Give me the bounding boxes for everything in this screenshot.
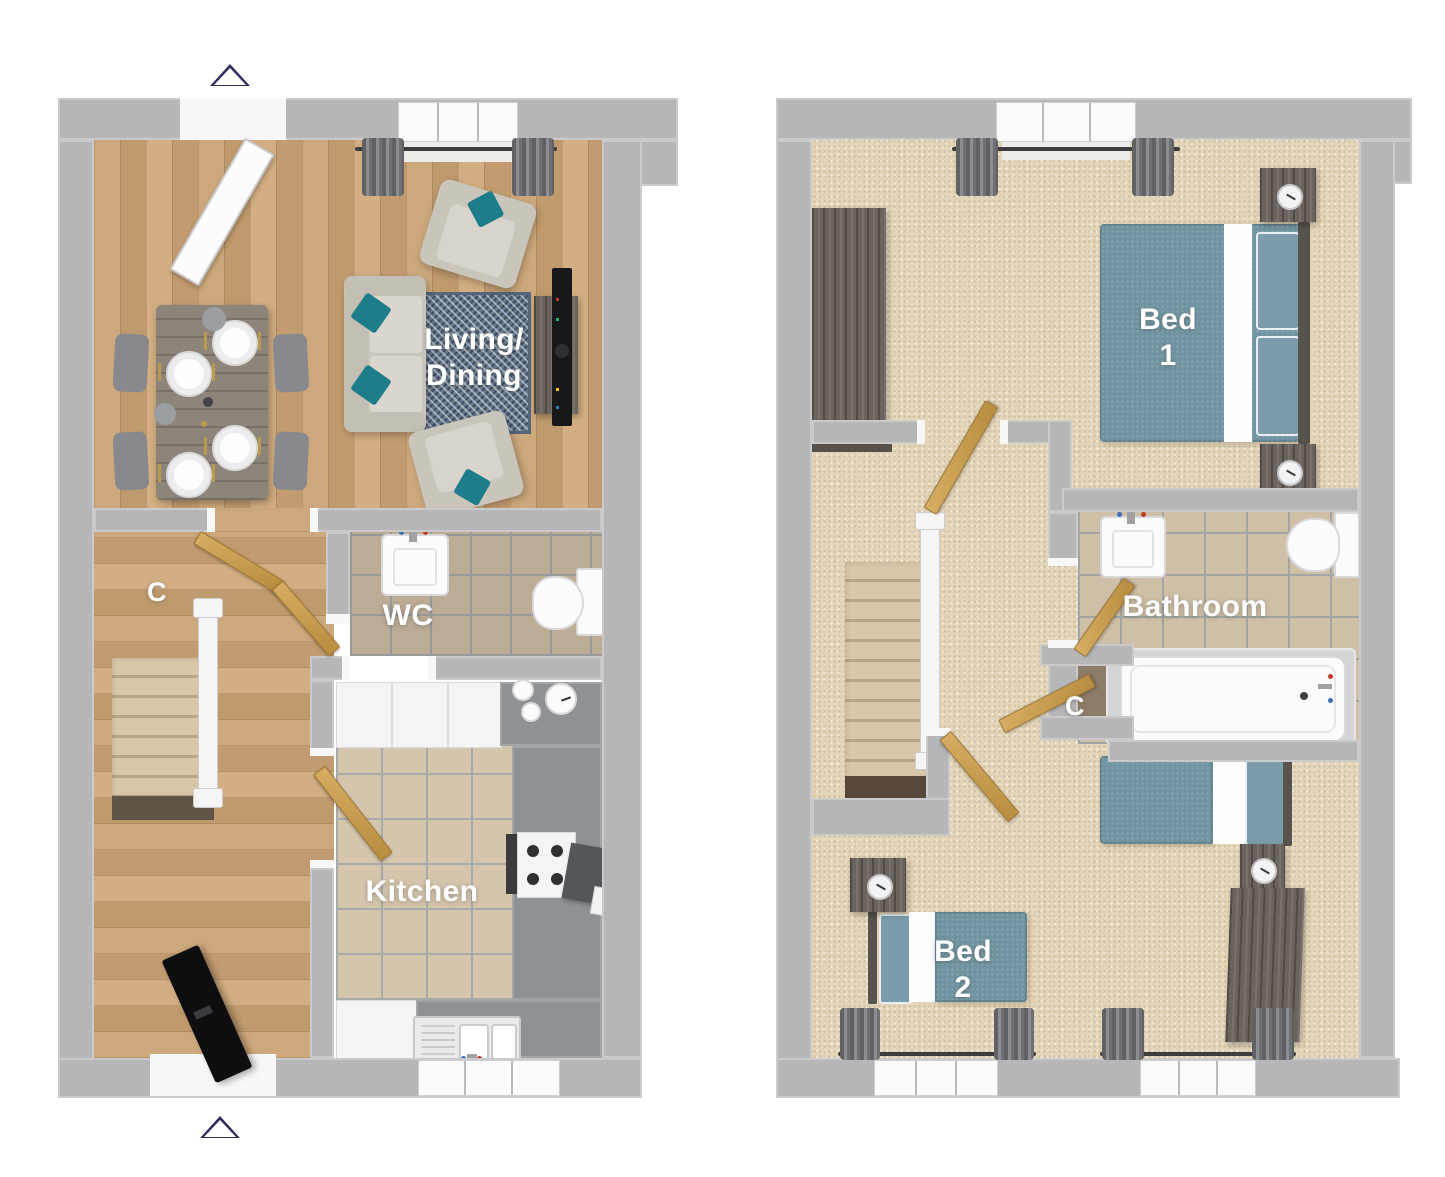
bed1-pillow (1256, 232, 1300, 330)
cutlery (258, 437, 261, 455)
living-dining-label-line2: Dining (426, 359, 522, 392)
lamp (1277, 184, 1303, 210)
entrance-triangle-icon (210, 64, 250, 86)
bed2-runner (1213, 756, 1245, 844)
exterior-wall-top (58, 98, 678, 140)
side-plate (154, 403, 176, 425)
wc-label: WC (368, 598, 448, 634)
bed1-label: Bed 1 (1108, 302, 1228, 374)
wall-trim (207, 508, 215, 532)
kitchen-left-wall-a (310, 680, 334, 756)
curtains (1102, 1008, 1144, 1060)
bathroom-label: Bathroom (1095, 589, 1295, 625)
curtains (956, 138, 998, 196)
lamp (867, 874, 893, 900)
staircase-upper (845, 562, 928, 780)
wall-trim (917, 420, 925, 444)
decor-dot (201, 421, 207, 427)
hall-doorway-floor (215, 508, 310, 532)
wall-trim (428, 656, 436, 680)
living-window (398, 102, 518, 142)
floor-plan-page: Living/ Dining WC Kitchen C (0, 0, 1445, 1177)
newel-post (915, 512, 945, 530)
lamp (1251, 858, 1277, 884)
bed2-single-bed (1100, 756, 1213, 844)
bed2-window-left (874, 1060, 998, 1096)
kitchen-worktop-white (336, 682, 502, 748)
bed2-label-line2: 2 (954, 971, 971, 1004)
kitchen-window (418, 1060, 560, 1096)
wc-top-wall (310, 508, 602, 532)
bathroom-top-wall (1062, 488, 1359, 512)
bathroom-sink (1100, 516, 1166, 578)
bed1-window (996, 102, 1136, 142)
toilet-bowl (1286, 518, 1340, 572)
cutlery (158, 464, 161, 482)
wall-trim (342, 656, 350, 680)
exterior-wall-right (602, 140, 642, 1058)
wc-kitchen-wall-b (428, 656, 602, 680)
dining-chair (273, 431, 310, 491)
kitchen-unit-bottom (336, 1000, 418, 1060)
wall-trim (310, 860, 334, 868)
bed1-pillow (1256, 336, 1300, 436)
clock-canister (545, 683, 577, 715)
dining-chair (273, 333, 310, 393)
dinner-plate (212, 425, 258, 471)
candle-holder (203, 397, 213, 407)
living-hall-divider (94, 508, 215, 532)
dinner-plate (166, 452, 212, 498)
exterior-wall-bottom (776, 1058, 1400, 1098)
living-dining-label: Living/ Dining (394, 322, 554, 394)
bed1-runner (1224, 224, 1252, 442)
stairwell-void (845, 776, 928, 800)
wall-trim (310, 508, 318, 532)
cupboard-label: C (137, 574, 177, 610)
cutlery (204, 437, 207, 455)
cutlery (204, 332, 207, 350)
bed2-label: Bed 2 (903, 934, 1023, 1006)
wall-trim (1000, 420, 1008, 444)
curtains (512, 138, 554, 196)
entry-threshold (180, 98, 286, 140)
wall-trim (326, 614, 350, 624)
cutlery (258, 332, 261, 350)
wall-trim (1048, 558, 1078, 566)
exterior-wall-left (58, 140, 94, 1098)
canister (512, 679, 534, 701)
window-recess (404, 140, 512, 162)
kitchen-floor (336, 746, 512, 1000)
newel-post (193, 598, 223, 618)
cupboard-label: C (1055, 688, 1095, 724)
bed2-label-line1: Bed (934, 935, 992, 968)
kitchen-sink (413, 1016, 521, 1064)
bed1-label-line1: Bed (1139, 303, 1197, 336)
curtains (840, 1008, 880, 1060)
stairwell-wall-h (812, 798, 950, 836)
kitchen-label: Kitchen (342, 874, 502, 910)
bed1-label-line2: 1 (1159, 339, 1176, 372)
bed2-headboard (1283, 754, 1292, 846)
bed2-top-wall (1108, 740, 1359, 762)
wc-sink (381, 534, 449, 596)
bed1-headboard (1298, 222, 1310, 444)
wc-left-wall (326, 532, 350, 616)
bed1-landing-divider (812, 420, 925, 444)
curtains (362, 138, 404, 196)
lamp (1277, 460, 1303, 486)
wc-toilet-bowl (532, 576, 584, 630)
dining-chair (113, 431, 150, 491)
tv (552, 268, 572, 426)
curtains (1132, 138, 1174, 196)
cutlery (212, 464, 215, 482)
living-dining-label-line1: Living/ (424, 323, 523, 356)
kitchen-left-wall-b (310, 868, 334, 1058)
entrance-triangle-icon (200, 1116, 240, 1138)
dining-chair (113, 333, 150, 393)
canister (521, 702, 541, 722)
exterior-wall-right (1359, 140, 1395, 1058)
curtains (994, 1008, 1034, 1060)
bathtub (1120, 656, 1346, 742)
cutlery (158, 363, 161, 381)
wall-trim (310, 748, 334, 756)
bed3-headboard (868, 910, 877, 1004)
curtains (1252, 1008, 1294, 1060)
cutlery (212, 363, 215, 381)
side-plate (202, 307, 226, 331)
bed2-pillow (1245, 758, 1287, 846)
exterior-wall-left (776, 140, 812, 1098)
exterior-wall-corner (638, 140, 678, 186)
bed2-window-right (1140, 1060, 1256, 1096)
staircase-banister (198, 604, 218, 808)
dinner-plate (166, 351, 212, 397)
oven-front (506, 834, 517, 894)
newel-post (193, 788, 223, 808)
wardrobe (812, 208, 886, 430)
